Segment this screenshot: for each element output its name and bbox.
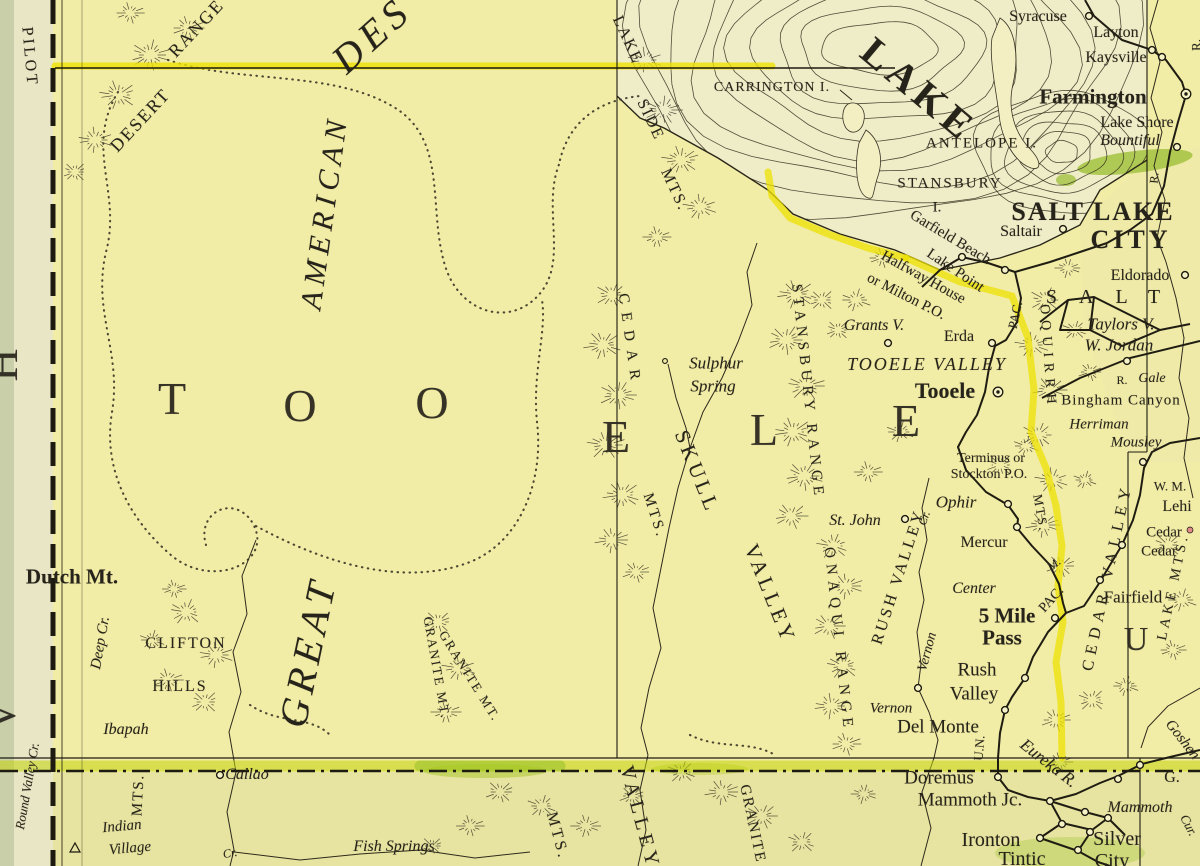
label-herriman: Herriman — [1069, 418, 1128, 433]
label-county-letter-e1: E — [602, 414, 630, 460]
label-county-letter-e2: E — [892, 398, 920, 444]
label-tooele-town: Tooele — [915, 380, 975, 402]
label-currant: Cur. — [1178, 812, 1200, 838]
label-rush-town-2: Valley — [950, 685, 999, 704]
label-pac-north: PAC. — [1006, 300, 1024, 329]
label-village: Village — [108, 840, 151, 859]
label-skull-1: SKULL — [671, 427, 723, 516]
label-antelope: ANTELOPE I. — [926, 137, 1038, 152]
label-rush-town-1: Rush — [957, 661, 996, 680]
label-mercur: Mercur — [960, 535, 1007, 551]
label-rr-right-edge-1: R. — [1190, 39, 1200, 51]
label-del-monte: Del Monte — [897, 718, 979, 737]
label-salt-lake-city-2: CITY — [1090, 227, 1171, 253]
label-clifton: CLIFTON — [145, 636, 226, 652]
label-indian: Indian — [102, 818, 142, 836]
label-ibapah: Ibapah — [103, 722, 148, 738]
label-vernon-town: Vernon — [870, 702, 913, 717]
label-saltair: Saltair — [1000, 224, 1042, 240]
label-fairfield: Fairfield — [1104, 589, 1163, 606]
label-valley-south: VALLEY — [616, 764, 663, 866]
label-callao: Callao — [225, 767, 269, 783]
label-skull-2: VALLEY — [741, 541, 800, 646]
label-ophir: Ophir — [936, 494, 977, 511]
label-eldorado: Eldorado — [1111, 268, 1170, 284]
label-farmington: Farmington — [1039, 87, 1146, 108]
label-goshen: Goshen — [1162, 717, 1200, 762]
label-terminus-2: Stockton P.O. — [951, 468, 1028, 482]
label-county-letter-u: U — [1124, 623, 1149, 657]
label-pilot-range: PILOT — [18, 26, 39, 87]
label-mammoth-jc: Mammoth Jc. — [918, 791, 1023, 810]
label-vernon-creek: Vernon — [916, 631, 940, 673]
label-syracuse: Syracuse — [1009, 9, 1067, 25]
label-w-jordan: W. Jordan — [1085, 337, 1154, 354]
label-salt-lake-city-1: SALT LAKE — [1011, 199, 1174, 225]
label-county-letter-l: L — [750, 407, 778, 453]
label-pac-south: PAC. — [1037, 584, 1067, 615]
map-root: PILOTDESERTRANGEHVGREATAMERICANDESTOOELE… — [0, 0, 1200, 866]
label-st-john: St. John — [829, 513, 881, 529]
label-kaysville: Kaysville — [1085, 50, 1146, 66]
label-ironton: Ironton — [962, 830, 1021, 850]
label-stansbury-island: STANSBURY — [897, 177, 1002, 192]
label-fish-springs: Fish Springs — [353, 839, 434, 855]
label-stansbury-range: STANSBURY RANGE — [788, 283, 826, 500]
label-sulphur-1: Sulphur — [689, 355, 743, 372]
label-county-letter-o1: O — [283, 383, 316, 429]
label-rr-right-edge-2: R. — [1148, 172, 1161, 184]
label-dutch-mt: Dutch Mt. — [26, 567, 118, 588]
label-m-pac: M. — [1045, 555, 1063, 573]
label-center: Center — [952, 581, 996, 597]
label-desert-big: DES — [325, 0, 420, 80]
label-doremus: Doremus — [904, 769, 974, 788]
label-silver: Silver — [1093, 829, 1141, 849]
label-cedar-mts-2: MTS. — [640, 492, 669, 541]
label-eureka-r: Eureka R. — [1017, 736, 1081, 791]
label-r-gale-r: R. — [1116, 374, 1127, 386]
label-mammoth: Mammoth — [1108, 800, 1173, 816]
label-bountiful: Bountiful — [1100, 133, 1160, 149]
label-w-m: W. M. — [1154, 480, 1186, 493]
label-round-valley-cr: Round Valley Cr. — [13, 742, 41, 831]
label-mousley: Mousley — [1111, 436, 1162, 451]
label-edge-letter-h: H — [0, 348, 25, 381]
label-taylors-v: Taylors V. — [1087, 316, 1154, 333]
label-oquirrh-mts: MTS. — [1031, 493, 1050, 533]
label-lake-shore: Lake Shore — [1100, 115, 1173, 131]
label-lakeside-2: SIDE — [634, 97, 667, 143]
label-american: AMERICAN — [296, 113, 353, 312]
label-salt-county: SALT — [1046, 287, 1182, 307]
map-labels: PILOTDESERTRANGEHVGREATAMERICANDESTOOELE… — [0, 0, 1200, 866]
label-mts-south: MTS. — [543, 810, 571, 861]
label-sulphur-2: Spring — [690, 378, 735, 395]
label-terminus-1: Terminus or — [957, 452, 1025, 466]
label-cr-bottom: Cr. — [222, 846, 238, 860]
label-layton: Layton — [1093, 25, 1138, 41]
label-silver-city: City — [1095, 851, 1129, 866]
label-erda: Erda — [944, 329, 974, 345]
label-granite-south: GRANITE — [736, 783, 767, 864]
label-grants-v: Grants V. — [844, 318, 904, 334]
label-five-mile: 5 Mile — [979, 606, 1036, 627]
label-g-station: G. — [1164, 770, 1180, 786]
label-gale: Gale — [1138, 372, 1165, 386]
label-stansbury-island-i: I. — [933, 201, 942, 216]
label-cedar-mts-1: CEDAR — [615, 293, 643, 390]
label-oquirrh: OQUIRRH — [1036, 304, 1057, 411]
label-great: GREAT — [273, 573, 344, 731]
label-lakeside-3: MTS. — [657, 166, 690, 213]
label-county-letter-t: T — [158, 376, 186, 422]
label-lehi: Lehi — [1162, 499, 1191, 515]
label-lake-big: LAKE — [854, 31, 985, 150]
label-desert-range-1: DESERT — [107, 85, 174, 155]
label-lakeside-1: LAKE — [609, 14, 645, 67]
label-deep-creek-mts: MTS. — [130, 773, 147, 816]
label-desert-range-2: RANGE — [165, 0, 227, 60]
label-un-rail: U.N. — [971, 735, 986, 761]
label-pass: Pass — [982, 628, 1022, 649]
label-onaqui-range: ONAQUI RANGE — [821, 546, 855, 733]
label-county-letter-o2: O — [415, 380, 448, 426]
label-hills-label: HILLS — [152, 679, 207, 695]
label-edge-letter-v: V — [0, 701, 23, 731]
label-bingham-canyon: Bingham Canyon — [1061, 394, 1180, 409]
label-carrington: CARRINGTON I. — [714, 81, 830, 95]
label-tintic: Tintic — [998, 849, 1045, 866]
label-tooele-valley: TOOELE VALLEY — [847, 355, 1007, 373]
label-deep-cr: Deep Cr. — [89, 615, 113, 670]
